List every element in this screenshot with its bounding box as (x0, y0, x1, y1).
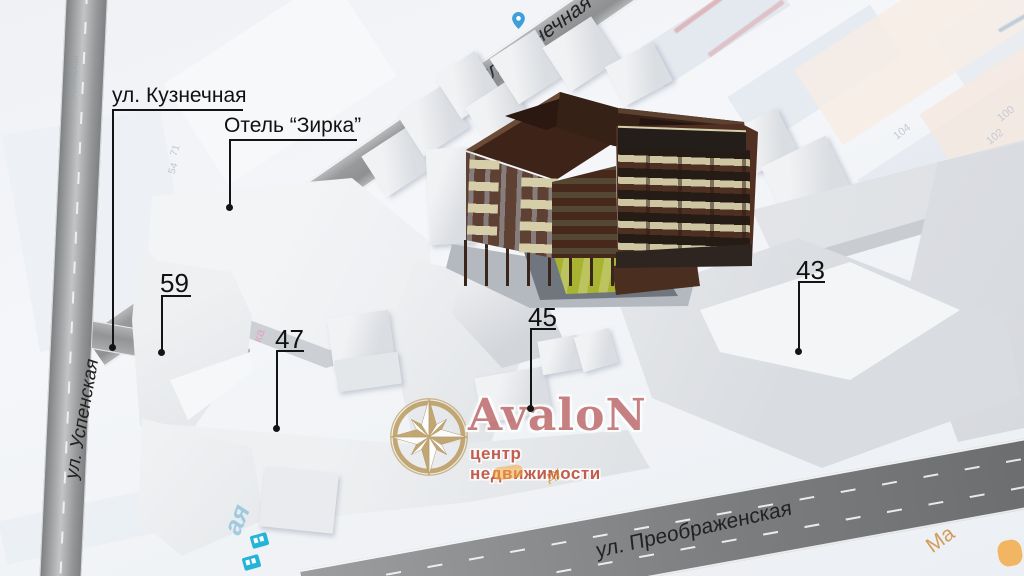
transit-stop-icon (242, 554, 262, 571)
callout-line (161, 295, 191, 297)
callout-dot (109, 344, 116, 351)
callout-dot (527, 405, 534, 412)
callout-line (229, 139, 357, 141)
balcony-stack (519, 177, 558, 262)
map-label-71: 71 (169, 144, 183, 158)
callout-line (161, 295, 163, 351)
transit-stop-icon (250, 532, 270, 549)
new-building-face-right-mullions (618, 146, 750, 259)
callout-line (112, 109, 114, 347)
callout-line (229, 139, 231, 205)
balcony-stack (466, 160, 499, 249)
brand-name: AvaloN (468, 390, 647, 441)
map-label-ma: Ма (922, 522, 960, 559)
callout-line (276, 350, 304, 352)
callout-label-kuznechnaya: ул. Кузнечная (112, 84, 247, 108)
new-building-top-glazing (618, 126, 746, 152)
map-label-104: 104 (891, 122, 913, 143)
callout-dot (226, 204, 233, 211)
callout-line (798, 281, 800, 350)
compass-rose-icon (388, 396, 470, 478)
callout-line (530, 328, 532, 407)
callout-line (798, 281, 825, 283)
callout-label-hotel-zirka: Отель “Зирка” (224, 114, 361, 138)
map-pin-icon (512, 12, 525, 29)
callout-line (276, 350, 278, 427)
callout-dot (158, 349, 165, 356)
callout-line (530, 328, 556, 330)
building-block (259, 466, 339, 533)
callout-dot (273, 425, 280, 432)
callout-line (112, 109, 243, 111)
map-poi-orange-icon (996, 538, 1024, 568)
callout-dot (795, 348, 802, 355)
location-map-render: ул. Кузнечная ул. Успенская ул. Преображ… (0, 0, 1024, 576)
